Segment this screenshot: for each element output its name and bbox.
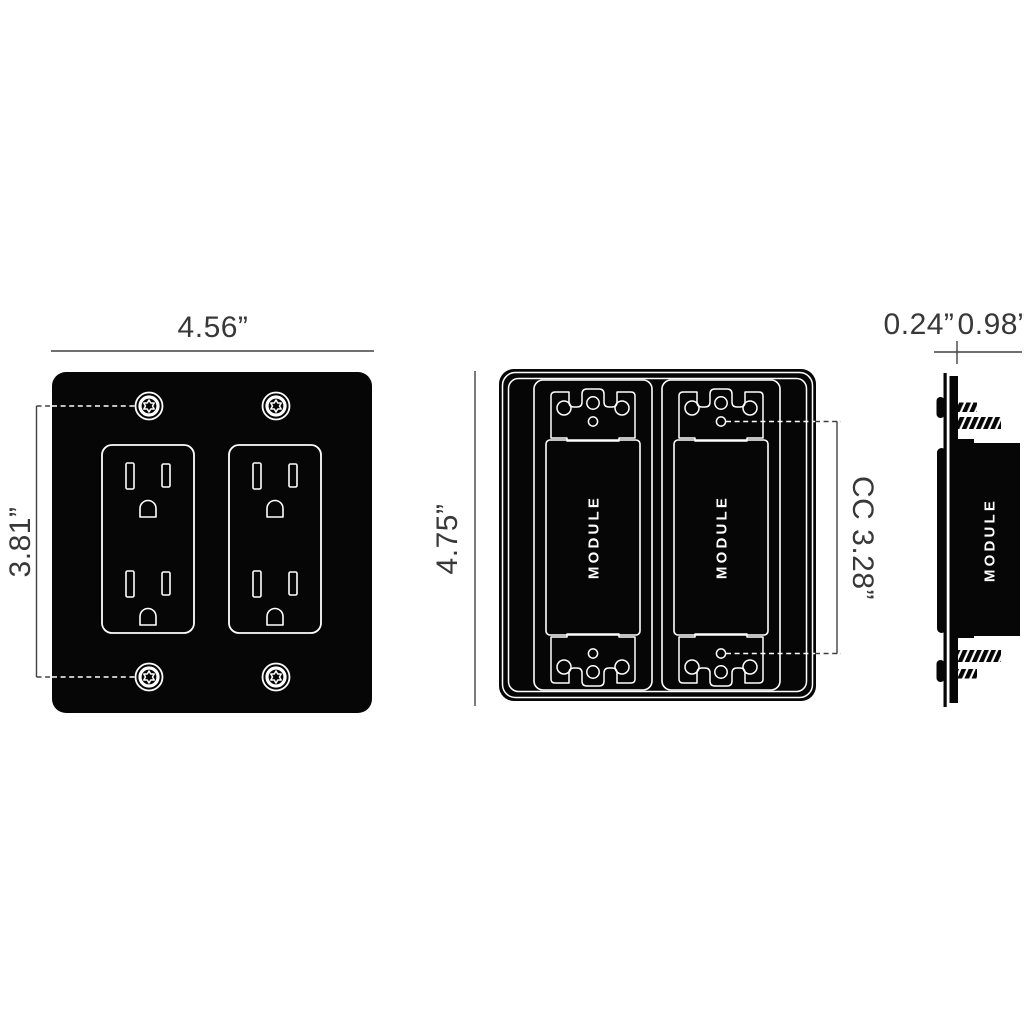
front-screw-span-label: 3.81” <box>4 507 37 578</box>
rear-height-label: 4.75” <box>431 504 464 575</box>
rear-cc-label: CC 3.28” <box>846 476 879 600</box>
screw-thread-icon <box>958 650 1001 662</box>
rear-height-dimension: 4.75” <box>431 371 475 706</box>
side-depth-dimension: 0.24” 0.98” <box>884 308 1024 364</box>
screw-thread-icon <box>958 669 977 679</box>
side-module-depth-label: 0.98” <box>958 308 1024 341</box>
rear-view: MODULE MODULE 4.75” CC 3.28” <box>431 369 879 706</box>
side-gasket-bottom <box>937 660 945 682</box>
side-module-label: MODULE <box>982 498 999 582</box>
front-view: 4.56” 3.81” <box>4 311 374 713</box>
screw-thread-icon <box>958 417 1001 429</box>
rear-module-right-label: MODULE <box>714 495 731 579</box>
faceplate-front <box>52 372 372 713</box>
side-plate-body <box>950 376 959 703</box>
technical-diagram: 4.56” 3.81” MODULE MODULE 4.75” <box>0 0 1024 1024</box>
side-gasket-top <box>937 397 945 418</box>
side-plate-thickness-label: 0.24” <box>884 308 955 341</box>
front-width-label: 4.56” <box>178 311 249 344</box>
side-view: MODULE 0.24” 0.98” <box>884 308 1024 707</box>
rear-module-left-label: MODULE <box>586 495 603 579</box>
screw-thread-icon <box>958 403 977 413</box>
front-width-dimension: 4.56” <box>51 311 374 351</box>
side-gasket-middle <box>937 448 946 633</box>
